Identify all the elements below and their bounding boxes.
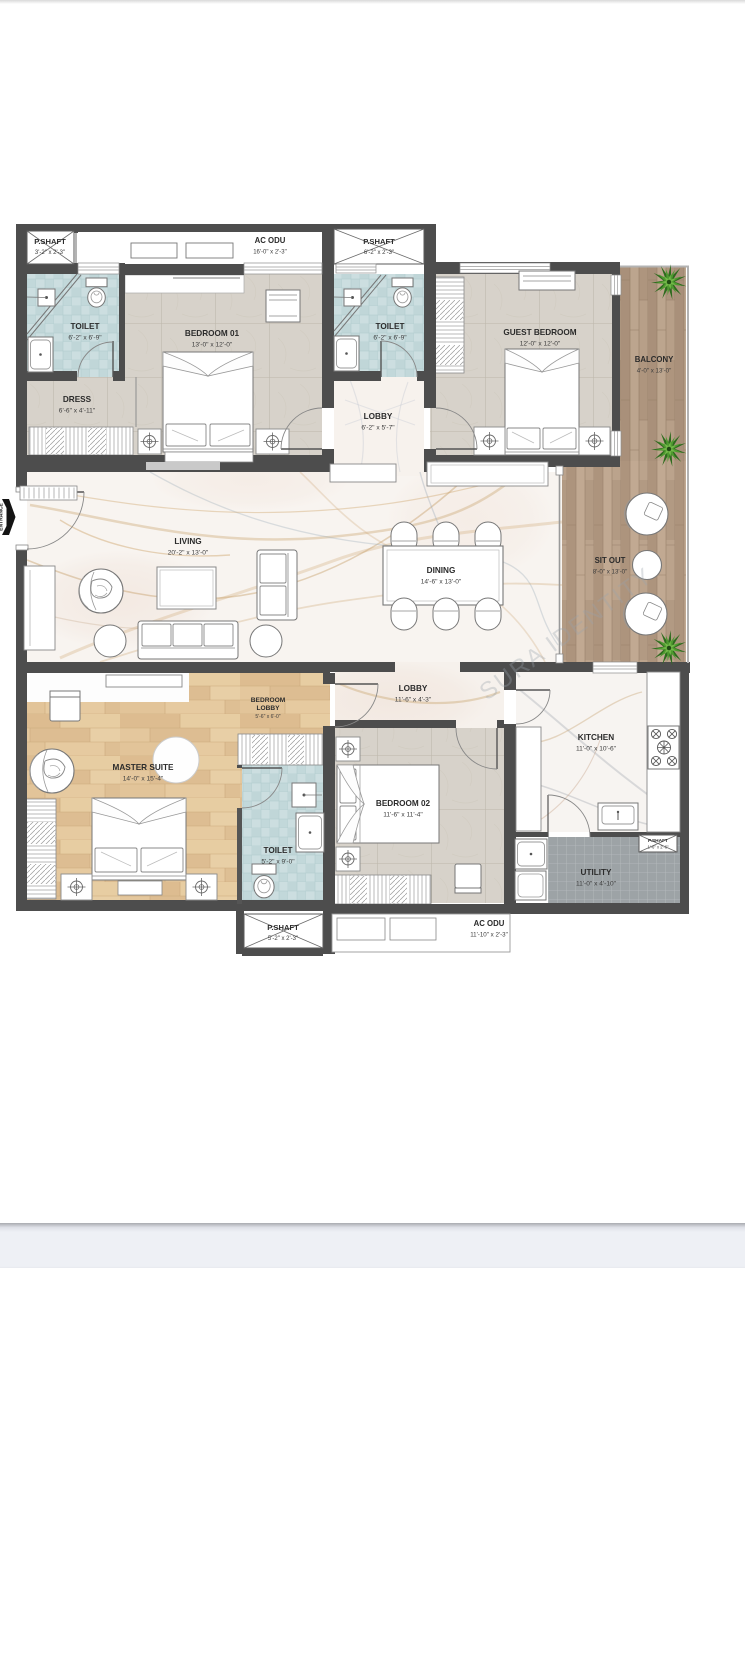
svg-text:BALCONY: BALCONY [635,355,674,364]
svg-text:16'-0" x 2'-3": 16'-0" x 2'-3" [253,250,287,256]
svg-text:TOILET: TOILET [264,846,293,855]
svg-text:BEDROOM: BEDROOM [251,697,286,704]
svg-text:LOBBY: LOBBY [364,412,393,421]
svg-text:P.SHAFT: P.SHAFT [34,237,66,246]
svg-text:BEDROOM 01: BEDROOM 01 [185,329,240,338]
svg-text:11'-6" x 4'-3": 11'-6" x 4'-3" [395,697,432,704]
svg-text:13'-0" x 12'-0": 13'-0" x 12'-0" [192,342,233,349]
svg-text:DINING: DINING [427,566,456,575]
svg-text:6'-2" x 6'-9": 6'-2" x 6'-9" [373,335,407,342]
svg-text:6'-6" x 4'-11": 6'-6" x 4'-11" [59,408,96,415]
svg-text:5'-2" x 2'-3": 5'-2" x 2'-3" [268,936,298,942]
svg-text:3'-2" x 2'-3": 3'-2" x 2'-3" [35,250,65,256]
svg-text:5'-2" x 9'-0": 5'-2" x 9'-0" [261,859,295,866]
svg-text:8'-0" x 13'-0": 8'-0" x 13'-0" [593,569,628,576]
svg-text:LIVING: LIVING [174,537,201,546]
svg-text:20'-2" x 13'-0": 20'-2" x 13'-0" [168,550,209,557]
svg-text:P.SHAFT: P.SHAFT [648,838,668,844]
svg-text:LOBBY: LOBBY [256,705,280,712]
svg-text:11'-10" x 2'-3": 11'-10" x 2'-3" [470,932,508,939]
svg-text:11'-6" x 11'-4": 11'-6" x 11'-4" [383,812,423,819]
svg-text:GUEST BEDROOM: GUEST BEDROOM [503,328,576,337]
svg-text:4'-0" x 13'-0": 4'-0" x 13'-0" [637,368,672,375]
svg-text:ENTRANCE: ENTRANCE [0,502,5,530]
svg-text:5'-6" x 6'-0": 5'-6" x 6'-0" [255,714,280,720]
svg-text:LOBBY: LOBBY [399,684,428,693]
svg-text:UTILITY: UTILITY [581,868,612,877]
svg-text:1'-6" x 2'-6": 1'-6" x 2'-6" [647,845,669,850]
svg-text:AC ODU: AC ODU [255,236,286,245]
svg-text:MASTER SUITE: MASTER SUITE [113,763,174,772]
svg-text:12'-0" x 12'-0": 12'-0" x 12'-0" [520,341,561,348]
svg-text:6'-2" x 6'-9": 6'-2" x 6'-9" [68,335,102,342]
svg-text:TOILET: TOILET [376,322,405,331]
svg-text:KITCHEN: KITCHEN [578,733,614,742]
svg-text:TOILET: TOILET [71,322,100,331]
svg-text:P.SHAFT: P.SHAFT [363,237,395,246]
svg-text:14'-0" x 15'-4": 14'-0" x 15'-4" [123,776,164,783]
svg-text:11'-0" x 10'-6": 11'-0" x 10'-6" [576,746,617,753]
svg-text:SIT OUT: SIT OUT [595,556,626,565]
svg-text:AC ODU: AC ODU [474,919,505,928]
svg-text:6'-2" x 2'-3": 6'-2" x 2'-3" [364,250,394,256]
svg-text:11'-0" x 4'-10": 11'-0" x 4'-10" [576,881,617,888]
svg-text:14'-6" x 13'-0": 14'-6" x 13'-0" [421,579,462,586]
svg-text:DRESS: DRESS [63,395,92,404]
svg-text:BEDROOM 02: BEDROOM 02 [376,799,431,808]
svg-text:6'-2" x 5'-7": 6'-2" x 5'-7" [361,425,395,432]
svg-text:P.SHAFT: P.SHAFT [267,923,299,932]
